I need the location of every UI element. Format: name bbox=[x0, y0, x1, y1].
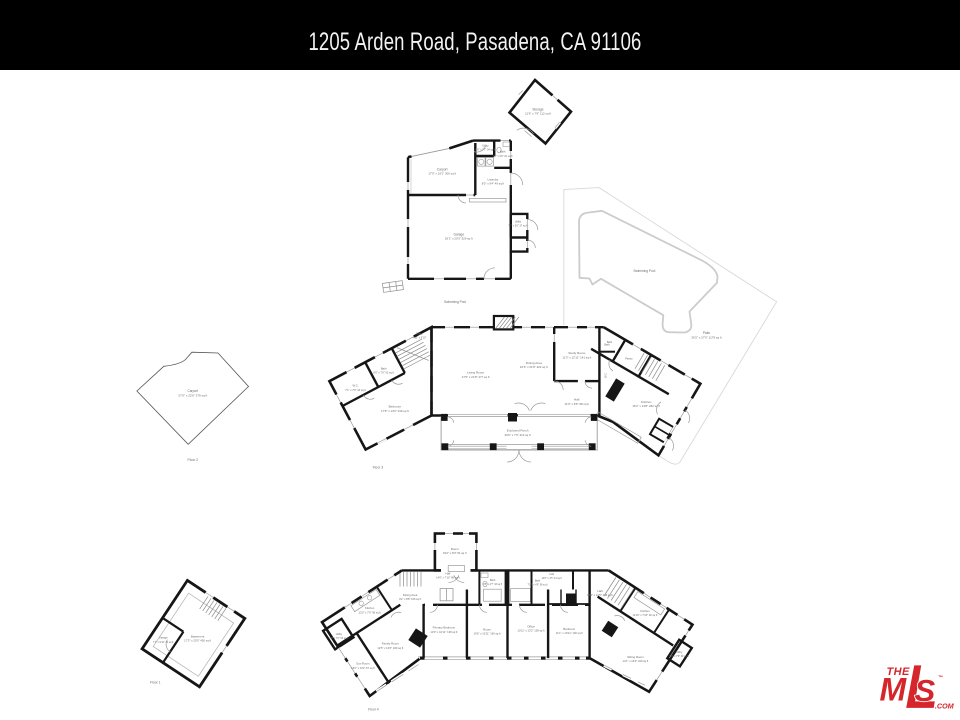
svg-text:30'2" x 27'6" 1179 sq ft: 30'2" x 27'6" 1179 sq ft bbox=[691, 335, 721, 339]
svg-text:Pantry: Pantry bbox=[625, 356, 633, 360]
svg-text:17'0" x 19'1" 300 sq ft: 17'0" x 19'1" 300 sq ft bbox=[428, 172, 456, 176]
svg-text:.COM: .COM bbox=[935, 701, 955, 710]
svg-text:Utility: Utility bbox=[676, 650, 683, 654]
svg-text:7'8" x 7'0" 53 sq ft: 7'8" x 7'0" 53 sq ft bbox=[329, 637, 348, 640]
svg-text:Utility: Utility bbox=[515, 219, 522, 223]
svg-text:17'3" x 20'5" 450 sq ft: 17'3" x 20'5" 450 sq ft bbox=[184, 639, 211, 643]
svg-text:Bath: Bath bbox=[535, 579, 541, 583]
svg-text:™: ™ bbox=[938, 675, 943, 681]
svg-text:Kitchen: Kitchen bbox=[640, 609, 650, 613]
svg-text:Utility: Utility bbox=[482, 143, 489, 147]
svg-text:5'0" x 7'9" 39 sq ft: 5'0" x 7'9" 39 sq ft bbox=[670, 655, 689, 658]
svg-text:14'1" x 13'9" 220 sq ft: 14'1" x 13'9" 220 sq ft bbox=[623, 659, 649, 663]
svg-text:Bath: Bath bbox=[381, 367, 387, 371]
svg-text:Utility: Utility bbox=[336, 632, 343, 636]
svg-text:18'2" x 13'2" 67 sq ft: 18'2" x 13'2" 67 sq ft bbox=[351, 666, 375, 670]
svg-text:9'10" x 8'3" 81 sq ft: 9'10" x 8'3" 81 sq ft bbox=[443, 551, 467, 555]
svg-text:7'7" x 5'0" 37 sq ft: 7'7" x 5'0" 37 sq ft bbox=[508, 225, 527, 228]
svg-text:9'5" x 4'7" 43 sq ft: 9'5" x 4'7" 43 sq ft bbox=[483, 583, 502, 586]
svg-text:Primary Bedroom: Primary Bedroom bbox=[433, 626, 456, 630]
svg-text:11'6" x 7'9" 112 sq ft: 11'6" x 7'9" 112 sq ft bbox=[525, 112, 551, 116]
svg-text:10'6" x 10'11" 160 sq ft: 10'6" x 10'11" 160 sq ft bbox=[473, 632, 500, 636]
svg-text:Floor 3: Floor 3 bbox=[373, 466, 384, 470]
svg-text:W.C.: W.C. bbox=[604, 372, 608, 378]
svg-text:Bath: Bath bbox=[604, 342, 610, 346]
svg-text:Room: Room bbox=[483, 628, 491, 632]
svg-text:4'6" x 7'7" 34 sq ft: 4'6" x 7'7" 34 sq ft bbox=[475, 149, 495, 152]
svg-text:27'0" x 22'6" 379 sq ft: 27'0" x 22'6" 379 sq ft bbox=[178, 393, 207, 397]
svg-text:4'10" x 5'10": 4'10" x 5'10" bbox=[413, 337, 427, 340]
svg-text:Hall: Hall bbox=[445, 572, 450, 576]
svg-text:11'9" x 8'5" 98 sq ft: 11'9" x 8'5" 98 sq ft bbox=[565, 402, 590, 406]
svg-text:7'11" x 4'9" 38 sq ft: 7'11" x 4'9" 38 sq ft bbox=[527, 584, 547, 587]
svg-text:Hall: Hall bbox=[598, 589, 603, 593]
svg-text:7'7" x 9'10" 40 sq ft: 7'7" x 9'10" 40 sq ft bbox=[153, 641, 174, 644]
svg-text:Bath: Bath bbox=[490, 578, 496, 582]
svg-text:M: M bbox=[880, 672, 908, 708]
svg-text:Floor 2: Floor 2 bbox=[188, 458, 199, 462]
svg-text:Swimming Pool: Swimming Pool bbox=[633, 269, 655, 273]
svg-text:Floor 1: Floor 1 bbox=[150, 681, 161, 685]
svg-text:30'6" x 7'0" 213 sq ft: 30'6" x 7'0" 213 sq ft bbox=[505, 433, 531, 437]
svg-text:12'5" x 7'6" 95 sq ft: 12'5" x 7'6" 95 sq ft bbox=[359, 610, 381, 614]
svg-text:Bath: Bath bbox=[500, 150, 506, 154]
svg-text:S: S bbox=[915, 673, 936, 708]
svg-text:Office: Office bbox=[527, 625, 535, 629]
svg-text:16'2" x 13'8" 262 sq ft: 16'2" x 13'8" 262 sq ft bbox=[632, 404, 660, 408]
svg-text:Entry: Entry bbox=[416, 332, 423, 336]
svg-text:8'5" x 9'4" 49 sq ft: 8'5" x 9'4" 49 sq ft bbox=[482, 182, 504, 186]
svg-text:Garage: Garage bbox=[159, 636, 168, 640]
svg-text:Family Room: Family Room bbox=[382, 642, 400, 646]
svg-text:11'1" x 10'11" 130 sq ft: 11'1" x 10'11" 130 sq ft bbox=[556, 631, 583, 635]
svg-text:8'0" x 7'0" 52 sq ft: 8'0" x 7'0" 52 sq ft bbox=[373, 371, 394, 375]
svg-text:Swimming Pool: Swimming Pool bbox=[444, 300, 466, 304]
svg-text:11'10" x 7'10" 92 sq ft: 11'10" x 7'10" 92 sq ft bbox=[633, 613, 658, 617]
svg-text:14'6" x 7'10" 98 sq ft: 14'6" x 7'10" 98 sq ft bbox=[436, 576, 460, 580]
svg-text:17'8" x 13'0" 240 sq ft: 17'8" x 13'0" 240 sq ft bbox=[381, 409, 409, 413]
svg-text:10'6" x 21'8" 222 sq ft: 10'6" x 21'8" 222 sq ft bbox=[520, 365, 548, 369]
svg-text:Dining Area: Dining Area bbox=[403, 593, 418, 597]
svg-text:27'6" x 21'8" 477 sq ft: 27'6" x 21'8" 477 sq ft bbox=[462, 375, 490, 379]
svg-text:Kitchen: Kitchen bbox=[365, 606, 375, 610]
svg-text:12'5" x 13'6" 180 sq ft: 12'5" x 13'6" 180 sq ft bbox=[377, 646, 403, 650]
svg-text:Sitting Room: Sitting Room bbox=[627, 655, 644, 659]
svg-text:26'1" x 20'3" 529 sq ft: 26'1" x 20'3" 529 sq ft bbox=[445, 237, 473, 241]
svg-text:Bedroom: Bedroom bbox=[563, 627, 575, 631]
svg-text:W.C.: W.C. bbox=[352, 384, 358, 388]
svg-text:Sun Room: Sun Room bbox=[356, 662, 370, 666]
svg-text:4'6" x 5'0" 22 sq ft: 4'6" x 5'0" 22 sq ft bbox=[493, 155, 513, 158]
svg-text:9'2" x 8'8" 105 sq ft: 9'2" x 8'8" 105 sq ft bbox=[399, 597, 421, 601]
svg-text:11'3" x 12'11" 141 sq ft: 11'3" x 12'11" 141 sq ft bbox=[562, 355, 591, 359]
svg-text:10'11" x 13'2" 138 sq ft: 10'11" x 13'2" 138 sq ft bbox=[517, 629, 544, 633]
svg-text:7'1" x 7'0" 44 sq ft: 7'1" x 7'0" 44 sq ft bbox=[345, 388, 366, 392]
svg-text:10'0" x 4'5" 44 sq ft: 10'0" x 4'5" 44 sq ft bbox=[542, 577, 563, 580]
svg-text:Hall: Hall bbox=[549, 572, 554, 576]
svg-text:Floor 4: Floor 4 bbox=[368, 708, 379, 712]
svg-text:13'9" x 10'11" 138 sq ft: 13'9" x 10'11" 138 sq ft bbox=[430, 630, 457, 634]
